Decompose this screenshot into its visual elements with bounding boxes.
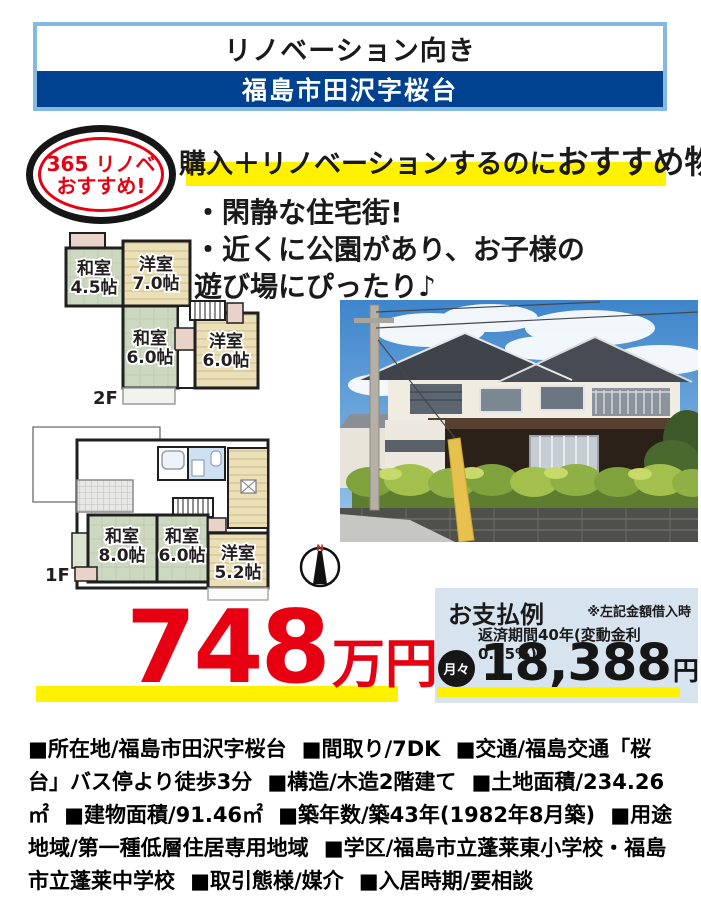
closet	[208, 518, 226, 532]
room-size: 5.2帖	[214, 562, 261, 583]
room-label: 和室	[133, 328, 167, 349]
room-size: 4.5帖	[70, 277, 117, 298]
floor-label-2f: 2F	[93, 388, 118, 409]
monthly-label-badge: 月々	[438, 650, 475, 687]
balcony	[123, 388, 175, 404]
payment-note1: ※左記金額借入時	[587, 601, 691, 620]
room-label: 洋室	[139, 254, 173, 275]
compass-icon: N	[296, 541, 344, 589]
monthly-amount-number: 18,388	[480, 640, 671, 688]
price-unit: 万円	[332, 622, 438, 698]
entrance	[77, 480, 133, 512]
headline: 購入＋リノベーションするのにおすすめ物件!	[179, 137, 701, 183]
monthly-amount-unit: 円	[673, 651, 699, 688]
hedge	[346, 464, 698, 514]
closet	[75, 567, 97, 581]
detail-item: ■入居時期/要相談	[359, 869, 534, 893]
bathtub	[162, 451, 184, 469]
room-label: 和室	[165, 526, 199, 547]
property-details: ■所在地/福島市田沢字桜台■間取り/7DK■交通/福島交通「桜台」バス停より徒歩…	[28, 733, 680, 898]
detail-item: ■建物面積/91.46㎡	[64, 803, 263, 827]
room-size: 6.0帖	[158, 545, 205, 566]
closet	[175, 328, 195, 350]
price-amount: 748	[126, 601, 328, 694]
headline-emphasis: おすすめ物件!	[556, 143, 701, 181]
room-size: 7.0帖	[132, 273, 179, 294]
floorplan-2f: 和室 4.5帖 洋室 7.0帖 和室 6.0帖 洋室 6.0帖 2F	[35, 228, 307, 413]
badge-line1: 365 リノベ	[47, 153, 156, 175]
top-banner: リノベーション向き 福島市田沢字桜台	[33, 22, 667, 111]
room-label: 和室	[105, 526, 139, 547]
monthly-amount: 18,388 円	[480, 640, 699, 688]
badge-line2: おすすめ!	[56, 175, 145, 197]
flyer-page: リノベーション向き 福島市田沢字桜台 365 リノベ おすすめ! 購入＋リノベー…	[0, 0, 701, 911]
room-label: 洋室	[209, 331, 243, 352]
closet	[72, 533, 88, 568]
detail-item: ■取引態様/媒介	[190, 869, 344, 893]
detail-item: ■構造/木造2階建て	[267, 770, 456, 794]
room-label: 洋室	[221, 543, 255, 564]
banner-tagline: リノベーション向き	[37, 26, 663, 71]
washbasin	[192, 460, 204, 476]
toilet	[211, 451, 221, 466]
feature-line: ・閑静な住宅街!	[194, 194, 585, 231]
payment-box: お支払例 ※左記金額借入時 返済期間40年(変動金利0.85%) 月々 18,3…	[435, 588, 698, 703]
badge-text: 365 リノベ おすすめ!	[38, 137, 164, 212]
block-wall	[340, 508, 698, 542]
floorplan-1f: 和室 8.0帖 和室 6.0帖 洋室 5.2帖 1F	[25, 420, 310, 605]
room-label: 和室	[77, 258, 111, 279]
detail-item: ■間取り/7DK	[302, 737, 441, 761]
floor-label-1f: 1F	[45, 565, 70, 586]
room-size: 6.0帖	[202, 350, 249, 371]
detail-item: ■築年数/築43年(1982年8月築)	[278, 803, 595, 827]
headline-normal: 購入＋リノベーションするのに	[179, 149, 556, 180]
property-photo	[340, 300, 698, 542]
detail-item: ■所在地/福島市田沢字桜台	[28, 737, 287, 761]
banner-location: 福島市田沢字桜台	[37, 71, 663, 107]
room-size: 6.0帖	[126, 347, 173, 368]
closet	[227, 303, 243, 323]
recommend-badge: 365 リノベ おすすめ!	[26, 125, 176, 224]
room-size: 8.0帖	[98, 545, 145, 566]
price: 748 万円	[126, 601, 438, 698]
stairs-2f	[190, 301, 225, 320]
